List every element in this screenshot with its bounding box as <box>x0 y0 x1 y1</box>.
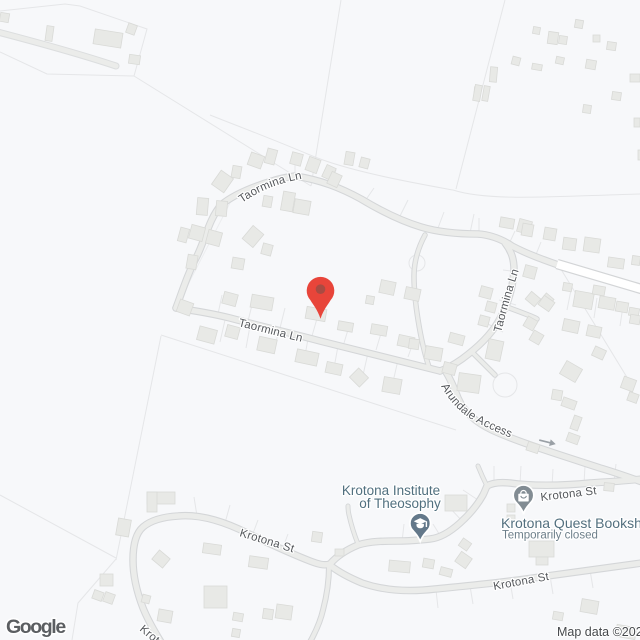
svg-text:of Theosophy: of Theosophy <box>359 496 441 511</box>
svg-text:Map data ©2021: Map data ©2021 <box>557 625 640 639</box>
svg-text:Temporarily closed: Temporarily closed <box>502 530 598 542</box>
svg-text:Google: Google <box>6 616 66 638</box>
